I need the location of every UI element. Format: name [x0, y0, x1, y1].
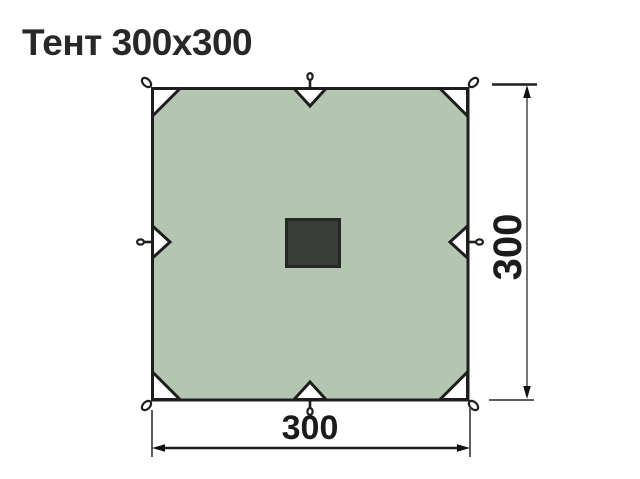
- tarp-diagram: [0, 0, 640, 479]
- corner-loop-bottom-left-icon: [140, 399, 153, 412]
- edge-tab-loop-top-icon: [307, 73, 312, 80]
- corner-loop-top-right-icon: [467, 76, 480, 89]
- corner-loop-top-left-icon: [140, 76, 153, 89]
- arrow-up-icon: [523, 85, 531, 98]
- width-dimension-label: 300: [250, 411, 370, 445]
- arrow-left-icon: [152, 444, 165, 452]
- center-logo-patch: [287, 220, 340, 267]
- product-diagram-page: Тент 300x300: [0, 0, 640, 479]
- arrow-right-icon: [457, 444, 470, 452]
- height-dimension-label: 300: [488, 187, 528, 307]
- edge-tab-loop-right-icon: [476, 239, 483, 244]
- arrow-down-icon: [523, 386, 531, 399]
- edge-tab-loop-left-icon: [137, 239, 144, 244]
